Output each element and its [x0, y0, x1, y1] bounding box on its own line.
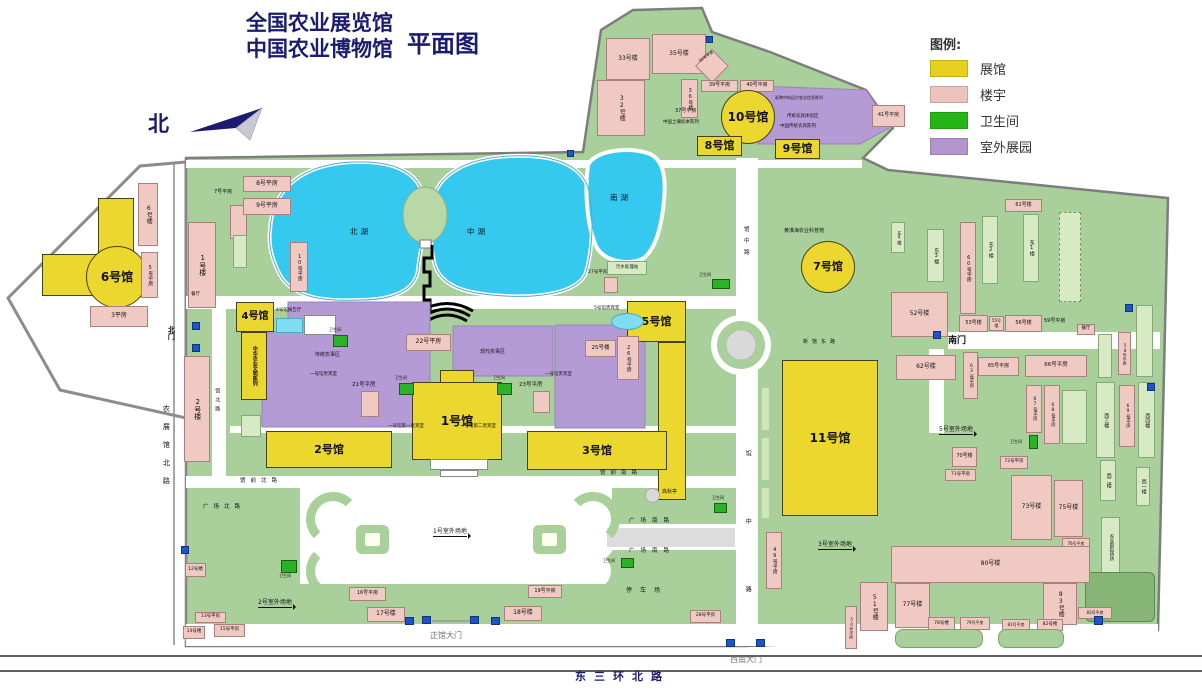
- bldg-22-pingfang-label: 22号平房: [416, 339, 442, 345]
- green-east3-label: 东3楼: [933, 248, 938, 264]
- legend-label: 展馆: [980, 59, 1006, 78]
- struct-hall1-a: [430, 459, 488, 470]
- bldg-14-label: 14号楼: [187, 630, 202, 635]
- green-east2-label: 东2楼: [987, 242, 992, 258]
- hall1-vip-room1: 一号馆第一贵宾室: [388, 425, 424, 430]
- bldg-18: 18号楼: [504, 606, 542, 621]
- green-west3-label: 西三楼: [1103, 413, 1108, 428]
- legend-swatch: [930, 86, 968, 103]
- hall-7: 7号馆: [801, 241, 855, 293]
- wc-label: 卫生间: [329, 328, 341, 332]
- green-west4: 西四楼: [1138, 382, 1155, 458]
- plaza-corner-arc: [566, 544, 620, 598]
- road-guangchang-north: 广场北路: [203, 505, 245, 511]
- lake-middle: 中湖: [467, 228, 488, 236]
- hall4-lecture-hall: 4号馆报告厅: [276, 309, 301, 314]
- bldg-12: 12号楼: [185, 563, 206, 577]
- bldg-10-pingfang: 10号平房: [290, 242, 308, 292]
- wc-label: 卫生间: [279, 574, 291, 578]
- road-guanqian-north: 馆前北路: [240, 479, 282, 485]
- hall-4-body: 中华农业文明陈列: [241, 332, 267, 400]
- hall5-vip-room: 5号馆贵宾室: [594, 307, 619, 312]
- bldg-66-pingfang-label: 66号平房: [1044, 363, 1068, 369]
- bldg-16-pingfang-label: 16号平房: [357, 591, 378, 596]
- bldg-62-label: 62号楼: [916, 364, 936, 370]
- road-dongsanhuan-north: 东三环北路: [575, 671, 670, 683]
- road-guanzhong-2: 馆中路: [744, 450, 750, 654]
- road-xinguan-east: 新馆东路: [803, 340, 839, 345]
- legend-label: 室外展园: [980, 137, 1032, 156]
- green-west1-label: 西一楼: [1140, 479, 1145, 494]
- legend-item: 卫生间: [930, 111, 1032, 130]
- bldg-60-pingfang-label: 60号平房: [965, 255, 970, 282]
- bldg-3-pingfang: 3平房: [90, 306, 148, 327]
- painted-pottery-exhibit: 彩陶中的远古农业信息陈列: [775, 96, 823, 100]
- pool-hall4: [276, 318, 303, 333]
- legend-item: 展馆: [930, 59, 1032, 78]
- lake-south: 南湖: [610, 194, 631, 202]
- bldg-65-pingfang: 65号平房: [978, 357, 1019, 376]
- bldg-18-label: 18号楼: [513, 610, 533, 616]
- legend-label: 卫生间: [980, 111, 1019, 130]
- hall-11-label: 11号馆: [810, 432, 851, 445]
- title-suffix: 平面图: [407, 24, 479, 59]
- traditional-tools-exhibit: 中国传统农具陈列: [780, 125, 816, 130]
- lawn-1: [895, 629, 983, 648]
- gate-southwest: 西南大门: [730, 656, 762, 664]
- road-guan-north: 馆北路: [214, 388, 219, 415]
- planter-1: [356, 525, 389, 554]
- site-5: 5号室外场地: [939, 427, 973, 435]
- hall-9: 9号馆: [775, 139, 820, 159]
- green-unlabeled-3: [1062, 390, 1087, 444]
- bldg-5-pingfang-label: 5号平房: [147, 265, 152, 286]
- bldg-canteen-east: 餐厅: [1077, 324, 1095, 335]
- green-west3: 西三楼: [1096, 382, 1115, 458]
- pavilion-circle: [645, 488, 660, 503]
- wc-5: [714, 503, 727, 513]
- bldg-27-pingfang: [604, 277, 618, 293]
- bldg-12-label: 12号楼: [188, 568, 203, 573]
- bldg-49-pingfang-label: 49号平房: [771, 547, 776, 574]
- legend-item: 室外展园: [930, 137, 1032, 156]
- green-west1: 西一楼: [1136, 467, 1150, 506]
- bldg-66-pingfang: 66号平房: [1025, 355, 1087, 377]
- planter-2: [533, 525, 566, 554]
- legend-swatch: [930, 112, 968, 129]
- lake-north: 北湖: [350, 228, 371, 236]
- pool-hall5: [611, 313, 644, 330]
- hall1-vip-room2: 一号馆第二贵宾室: [460, 425, 496, 430]
- gate-marker: [567, 150, 574, 157]
- bldg-77: 77号楼: [895, 583, 930, 628]
- bldg-49-pingfang: 49号平房: [766, 532, 782, 589]
- bldg-2-label: 2号楼: [193, 398, 201, 420]
- bldg-41-pingfang-label: 41号平房: [878, 113, 899, 118]
- bldg-25-label: 25号楼: [592, 346, 610, 352]
- bldg-32: 32号楼: [597, 80, 645, 136]
- wc-6: [621, 558, 634, 568]
- traditional-farming-zone: 传统农事区: [315, 353, 340, 358]
- bldg-3-pingfang-label: 3平房: [111, 313, 127, 319]
- bldg-56-label: 56号楼: [1015, 321, 1031, 326]
- gate-marker: [192, 322, 200, 330]
- hall-8-label: 8号馆: [705, 140, 735, 152]
- wc-4: [712, 279, 730, 289]
- bldg-8-pingfang-label: 8号平房: [256, 181, 278, 187]
- wc-label: 卫生间: [1010, 440, 1022, 444]
- bldg-6-label: 6号楼: [145, 205, 151, 224]
- wc-label: 卫生间: [603, 559, 615, 563]
- wc-label: 卫生间: [699, 273, 711, 277]
- bldg-80: 80号楼: [891, 546, 1090, 583]
- gate-marker: [192, 344, 200, 352]
- bldg-39-pingfang-label: 39号平房: [709, 83, 730, 88]
- road-guanzhong-1: 馆中路: [742, 226, 748, 261]
- hedge-strip: [1059, 212, 1081, 302]
- gate-south: 南门: [948, 337, 966, 346]
- bldg-6: 6号楼: [138, 183, 158, 246]
- road-nongzhanguan-north: 农展馆北路: [162, 405, 169, 495]
- bldg-72-pingfang: 72号平房: [1000, 456, 1028, 469]
- bldg-1-label: 1号楼: [198, 254, 206, 276]
- title-line1: 全国农业展览馆: [246, 10, 393, 36]
- wc-8: [1029, 435, 1038, 449]
- bldg-79-pingfang-label: 79号平房: [966, 621, 983, 625]
- bldg-33: 33号楼: [606, 38, 650, 80]
- green-east4: 东4楼: [891, 222, 905, 253]
- bldg-33-label: 33号楼: [618, 56, 638, 62]
- bldg-13-pingfang: 13号平房: [195, 612, 226, 623]
- parking-lot: 停车场: [626, 588, 668, 594]
- bldg-15-pingfang-label: 15号平房: [220, 628, 239, 633]
- hall-2: 2号馆: [266, 431, 392, 468]
- lawn-2: [998, 629, 1064, 648]
- north-label: 北: [148, 108, 169, 138]
- bldg-51-label: 51号楼: [871, 594, 877, 620]
- hall-6-label: 6号馆: [101, 271, 133, 284]
- struct-hall1-b: [440, 470, 478, 477]
- green-pavilion-west: [241, 415, 261, 437]
- bldg-14: 14号楼: [183, 626, 205, 639]
- hall-2-label: 2号馆: [314, 444, 344, 456]
- green-guesthouse-label: 农业部招待所: [1108, 534, 1113, 561]
- bldg-53: 53号楼: [959, 315, 988, 332]
- bldg-63-pingfang: 63号平房: [963, 352, 978, 399]
- green-east4-label: 东4楼: [896, 231, 901, 245]
- legend: 图例: 展馆楼宇卫生间室外展园: [930, 34, 1032, 163]
- bldg-58-pingfang: 58号平房: [1118, 332, 1131, 375]
- legend-item: 楼宇: [930, 85, 1032, 104]
- hall-11: 11号馆: [782, 360, 878, 516]
- site-2: 2号室外场地: [258, 600, 292, 608]
- bldg-36-label: 36号楼: [687, 88, 692, 110]
- site-3: 3号室外场地: [818, 542, 852, 550]
- gate-marker: [491, 617, 500, 625]
- green-unlabeled-1: [1136, 305, 1153, 377]
- bldg-26-pingfang-label: 26号平房: [625, 345, 630, 372]
- bldg-35-label: 35号楼: [669, 51, 689, 57]
- bldg-78-label: 78号楼: [934, 622, 949, 627]
- hall-9-label: 9号馆: [783, 143, 813, 155]
- bldg-61-label: 61号楼: [1015, 203, 1031, 208]
- hall-3-label: 3号馆: [582, 445, 612, 457]
- green-east1: 东1楼: [1023, 214, 1039, 282]
- bldg-71-pingfang: 71号平房: [945, 469, 976, 481]
- gate-marker: [706, 36, 713, 43]
- legend-label: 楼宇: [980, 85, 1006, 104]
- bldg-81-pingfang-label: 81号平房: [1007, 623, 1024, 627]
- bldg-23-pingfang: [533, 391, 550, 413]
- hall-3: 3号馆: [527, 431, 667, 470]
- bldg-82-label: 82号楼: [1043, 623, 1058, 628]
- bldg-51: 51号楼: [860, 582, 888, 631]
- bldg-21-pingfang-label: 21号平房: [352, 383, 376, 389]
- wc-3: [497, 383, 512, 395]
- bldg-21-pingfang: [361, 391, 379, 417]
- green-west4-label: 西四楼: [1144, 413, 1149, 428]
- hall1-vip-east: 一号馆贵宾室: [545, 373, 572, 378]
- bldg-9-pingfang: 9号平房: [243, 198, 291, 215]
- bldg-canteen-east-label: 餐厅: [1082, 327, 1091, 332]
- bldg-28-pingfang-label: 28号平房: [696, 614, 715, 619]
- hall-4-top: 4号馆: [236, 302, 274, 332]
- bldg-15-pingfang: 15号平房: [214, 624, 245, 637]
- bldg-2: 2号楼: [184, 356, 210, 462]
- wc-label: 卫生间: [395, 376, 407, 380]
- bldg-75-label: 75号楼: [1059, 505, 1079, 511]
- bldg-70-label: 70号楼: [956, 454, 972, 459]
- bldg-40-pingfang-label: 40号平房: [746, 83, 767, 88]
- bldg-28-pingfang: 28号平房: [690, 610, 721, 623]
- traditional-tools-experience: 传统农具体验区: [787, 115, 819, 120]
- bldg-75: 75号楼: [1054, 480, 1083, 537]
- bldg-26-pingfang: 26号平房: [617, 336, 639, 380]
- modern-farming-zone: 现代农事区: [480, 350, 505, 355]
- gate-marker: [1094, 616, 1103, 625]
- green-unlabeled-2: [1098, 334, 1112, 378]
- bldg-27-pingfang-label: 27号平房: [588, 271, 607, 276]
- bldg-60-pingfang: 60号平房: [960, 222, 976, 314]
- bldg-72-pingfang-label: 72号平房: [1004, 460, 1023, 465]
- bldg-17-label: 17号楼: [376, 611, 396, 617]
- map-title: 全国农业展览馆 中国农业博物馆 平面图: [246, 10, 479, 63]
- bldg-73-label: 73号楼: [1022, 504, 1042, 510]
- green-west2-label: 西二楼: [1105, 473, 1110, 488]
- gate-marker: [405, 617, 414, 625]
- gate-north: 北门: [167, 326, 174, 340]
- bldg-83-label: 83号楼: [1057, 591, 1063, 617]
- bldg-25: 25号楼: [585, 340, 616, 357]
- bldg-56: 56号楼: [1005, 315, 1042, 332]
- green-east1-label: 东1楼: [1028, 240, 1033, 256]
- bldg-55-label: 55号楼: [990, 319, 1003, 328]
- bldg-50-pingfang-label: 50号平房: [849, 617, 853, 639]
- green-east3: 东3楼: [927, 229, 944, 282]
- sewage-station-label: 污水处理站: [616, 266, 639, 271]
- plaza-corner-arc: [566, 492, 620, 546]
- sewage-station: 污水处理站: [607, 261, 647, 275]
- huanghuaihai-science-hall: 黄淮海农业科普馆: [784, 229, 824, 234]
- gate-marker: [1147, 383, 1155, 391]
- gate-marker: [933, 331, 941, 339]
- green-east2: 东2楼: [982, 216, 998, 284]
- road-guanqian-south: 馆前南路: [600, 471, 642, 477]
- canteen-label: 餐厅: [191, 293, 200, 298]
- legend-swatch: [930, 138, 968, 155]
- green-guesthouse: 农业部招待所: [1101, 517, 1120, 578]
- hall-8: 8号馆: [697, 136, 742, 156]
- gate-marker: [1125, 304, 1133, 312]
- legend-swatch: [930, 60, 968, 77]
- bldg-58-pingfang-label: 58号平房: [1122, 343, 1126, 365]
- bldg-62: 62号楼: [896, 355, 956, 380]
- hall-5-wing: [658, 342, 686, 500]
- bldg-19-pingfang-label: 19号平房: [534, 589, 555, 594]
- wc-1: [333, 335, 348, 347]
- gate-main: 正馆大门: [430, 632, 462, 640]
- bldg-61: 61号楼: [1005, 199, 1042, 212]
- bldg-9-pingfang-label: 9号平房: [256, 203, 278, 209]
- hall1-vip-west: 一号馆贵宾室: [310, 373, 337, 378]
- bldg-65-pingfang-label: 65号平房: [988, 364, 1009, 369]
- bldg-52-label: 52号楼: [910, 311, 930, 317]
- bldg-80-label: 80号楼: [981, 561, 1001, 567]
- hall-4-top-label: 4号馆: [242, 312, 269, 323]
- bldg-69-pingfang: 69号平房: [1119, 385, 1135, 447]
- bldg-73: 73号楼: [1011, 475, 1052, 540]
- gate-marker: [181, 546, 189, 554]
- bldg-77-label: 77号楼: [903, 602, 923, 608]
- bldg-83-pingfang-label: 83号平房: [1086, 611, 1103, 615]
- bldg-17: 17号楼: [367, 607, 405, 622]
- road-guangchang-south-2: 广场南路: [629, 549, 675, 555]
- bldg-70: 70号楼: [952, 447, 977, 467]
- bldg-50-pingfang: 50号平房: [845, 606, 857, 649]
- gate-marker: [422, 616, 431, 624]
- campus-map: 全国农业展览馆 中国农业博物馆 平面图 北 图例: 展馆楼宇卫生间室外展园 6号…: [0, 0, 1202, 695]
- wc-2: [399, 383, 414, 395]
- hall-1: 1号馆: [412, 382, 502, 460]
- bldg-5-pingfang: 5号平房: [141, 252, 158, 298]
- green-small-west: [233, 235, 247, 268]
- bldg-55: 55号楼: [989, 316, 1004, 331]
- hall-5-label: 5号馆: [642, 316, 672, 328]
- bldg-22-pingfang: 22号平房: [406, 334, 451, 351]
- legend-title: 图例:: [930, 34, 1032, 53]
- bldg-32-label: 32号楼: [618, 95, 624, 121]
- bldg-63-pingfang-label: 63号平房: [968, 364, 973, 388]
- plaza-corner-arc: [306, 492, 360, 546]
- bldg-8-pingfang: 8号平房: [243, 176, 291, 192]
- hall-10-label: 10号馆: [728, 111, 769, 124]
- bldg-69-pingfang-label: 69号平房: [1125, 404, 1130, 428]
- bldg-59-pingfang-label: 59号平房: [1044, 319, 1065, 324]
- bldg-67-pingfang-label: 67号平房: [1032, 397, 1037, 421]
- hall-6: 6号馆: [86, 246, 148, 308]
- bldg-67-pingfang: 67号平房: [1026, 385, 1042, 433]
- road-guangchang-south-1: 广场南路: [629, 519, 675, 525]
- soil-specimen-exhibit: 中国土壤标本陈列: [663, 121, 699, 126]
- bldg-68-pingfang-label: 68号平房: [1050, 403, 1055, 427]
- bldg-10-pingfang-label: 10号平房: [296, 254, 301, 281]
- bldg-13-pingfang-label: 13号平房: [201, 615, 220, 620]
- bldg-37-pingfang-label: 37号平房: [675, 109, 696, 114]
- bldg-53-label: 53号楼: [965, 321, 981, 326]
- hall-4-body-label: 中华农业文明陈列: [251, 346, 256, 386]
- gate-marker: [470, 616, 479, 624]
- hall-7-label: 7号馆: [813, 261, 843, 273]
- bldg-41-pingfang: 41号平房: [872, 105, 905, 127]
- bldg-7-pingfang-label: 7号平房: [214, 190, 232, 195]
- gate-marker: [756, 639, 765, 647]
- site-1: 1号室外场地: [433, 529, 467, 537]
- wc-7: [281, 560, 297, 573]
- wc-label: 卫生间: [493, 376, 505, 380]
- wc-label: 卫生间: [712, 496, 724, 500]
- bldg-23-pingfang-label: 23号平房: [519, 383, 543, 389]
- bldg-68-pingfang: 68号平房: [1044, 385, 1060, 444]
- bldg-71-pingfang-label: 71号平房: [951, 473, 970, 478]
- green-west2: 西二楼: [1100, 460, 1116, 501]
- title-line2: 中国农业博物馆: [246, 36, 393, 62]
- bldg-16-pingfang: 16号平房: [349, 587, 386, 601]
- bldg-19-pingfang: 19号平房: [528, 585, 562, 598]
- pavilion-gaoqiu: 高秋亭: [662, 490, 677, 495]
- gate-marker: [726, 639, 735, 647]
- bldg-39-pingfang: 39号平房: [701, 80, 738, 92]
